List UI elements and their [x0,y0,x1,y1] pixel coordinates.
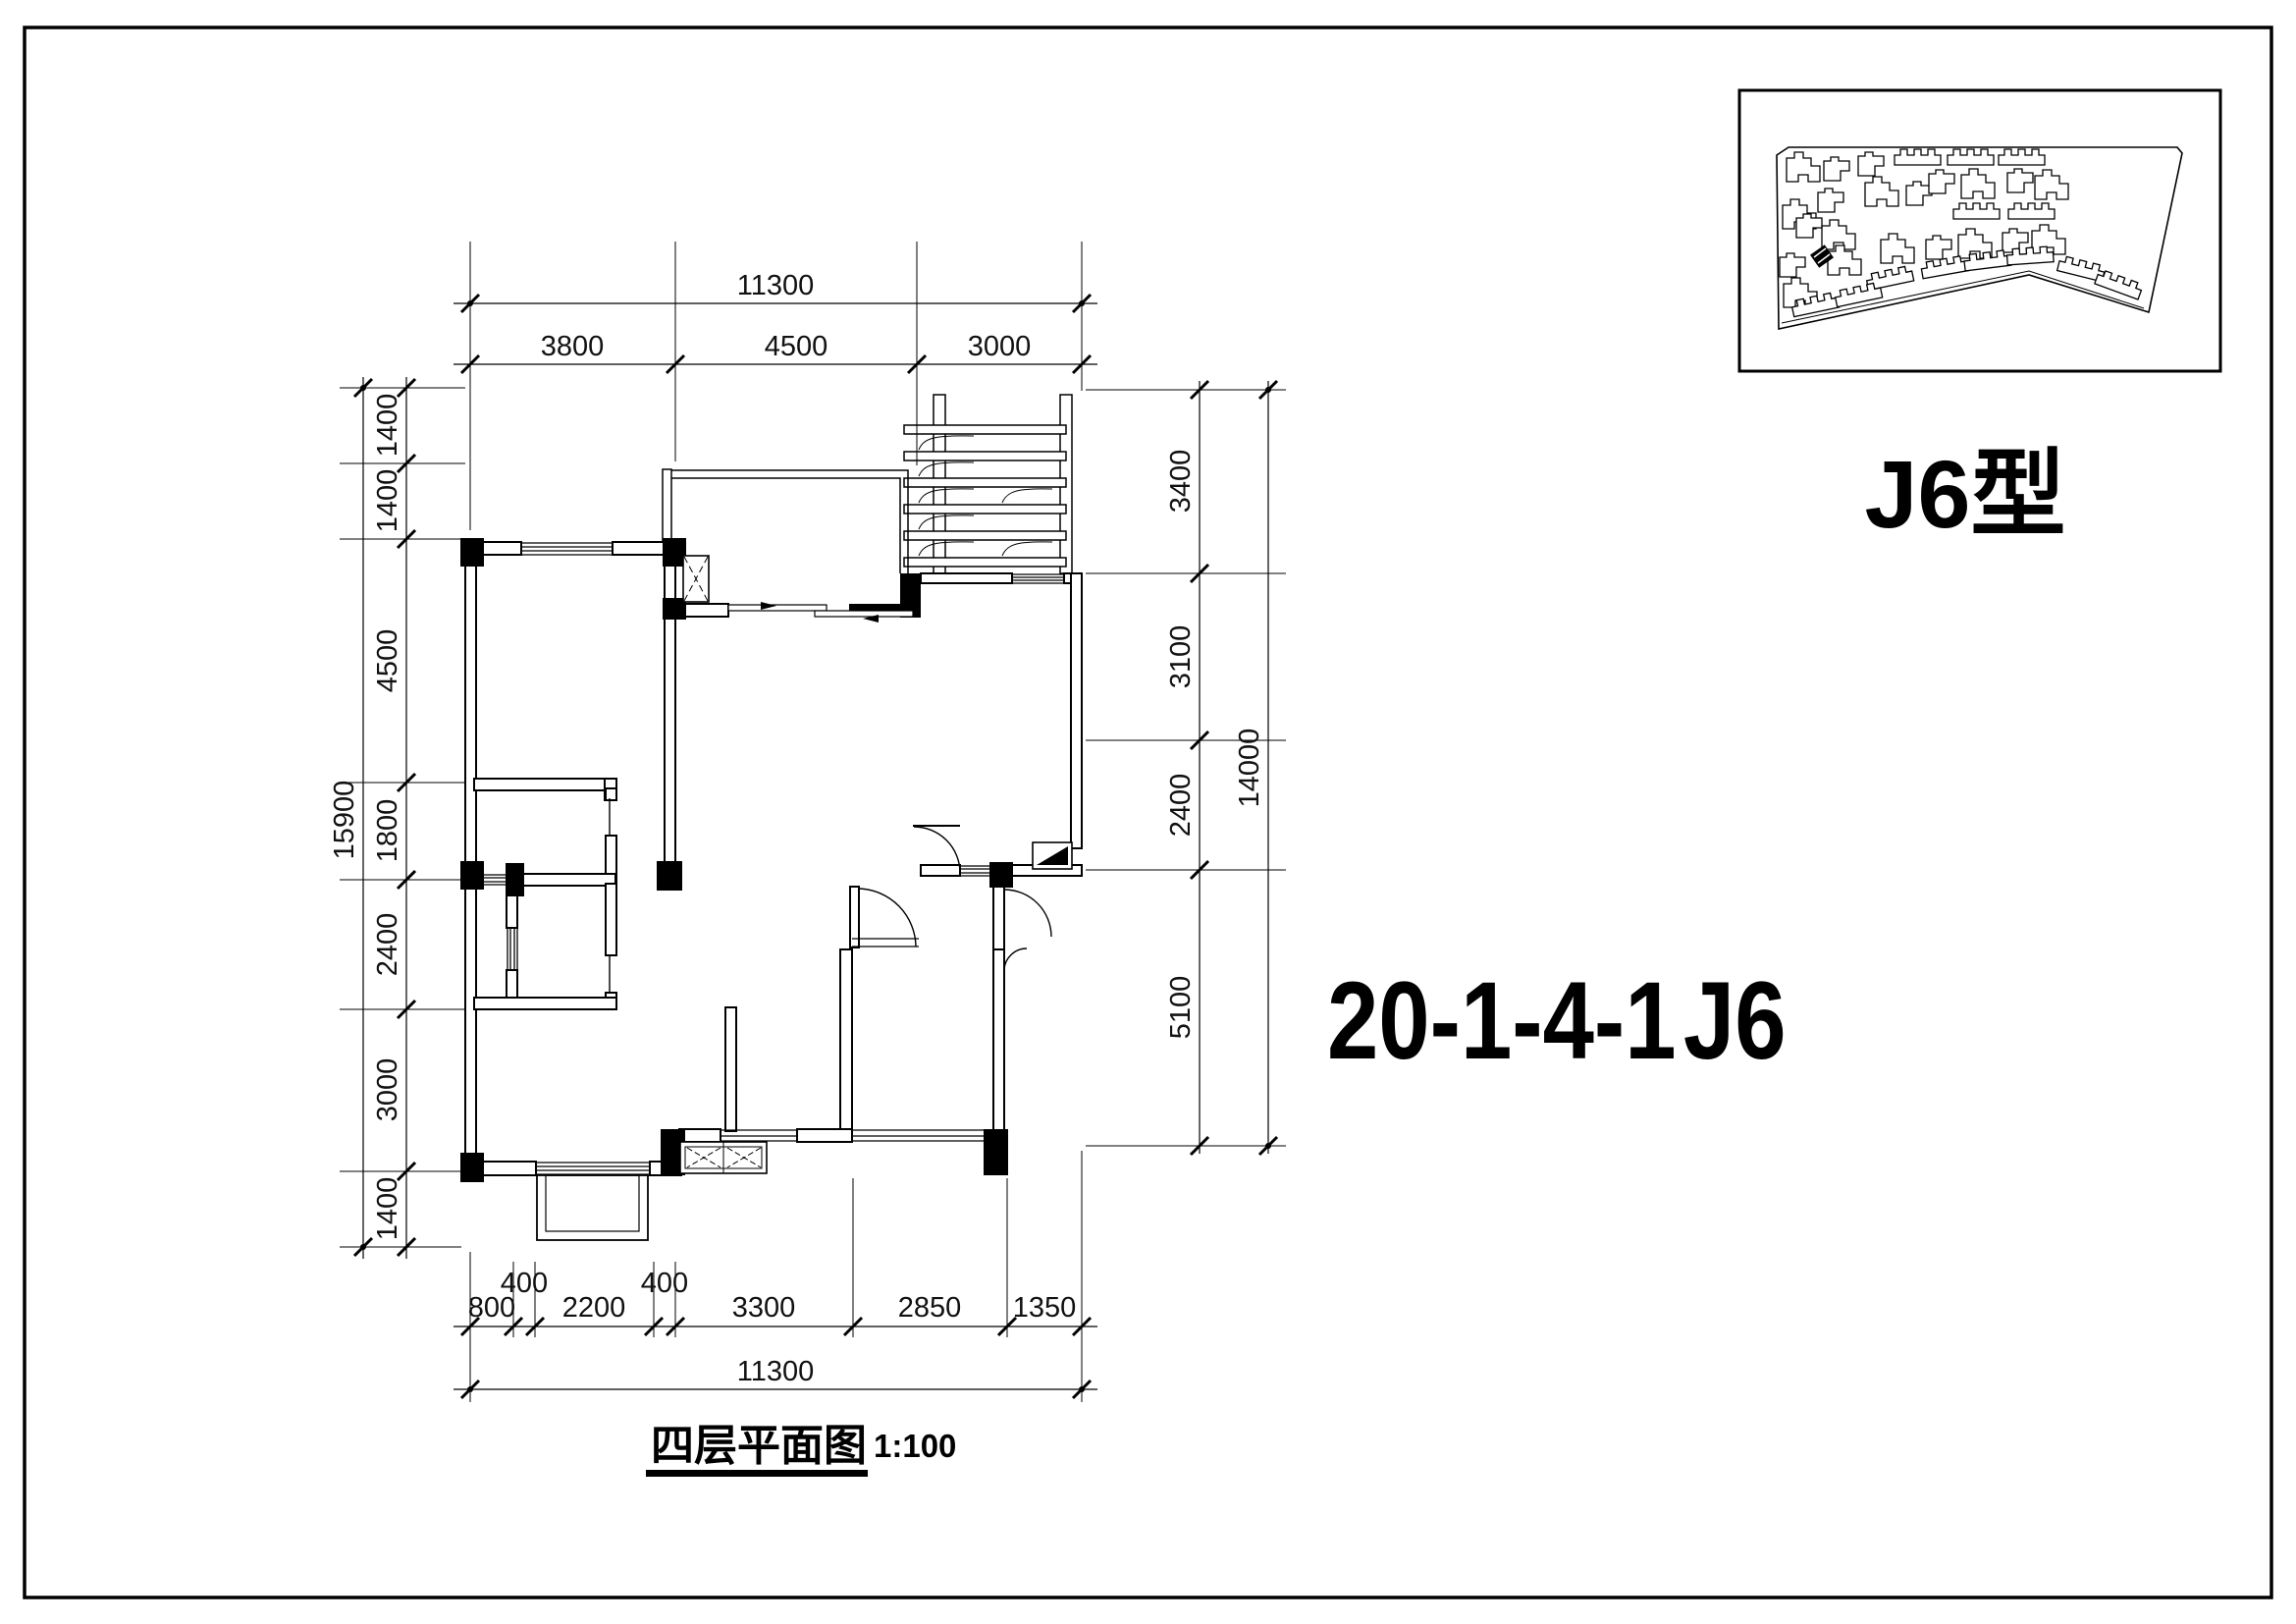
column [657,861,682,891]
dim-bottom-seg-1: 400 [501,1268,548,1299]
door-arc-kitchen [859,889,916,947]
dim-right-seg-0: 3400 [1165,450,1197,514]
dim-top-seg-2: 3000 [968,331,1032,362]
dim-top-total: 11300 [737,270,815,301]
wall-bed1-south [474,779,616,790]
window-living-north [1012,574,1064,583]
dim-left-seg-3: 1800 [372,799,403,863]
caption-text: 四层平面图 [651,1422,867,1470]
threshold [852,939,919,947]
dim-right-total: 14000 [1234,729,1265,808]
window-wc [507,928,517,970]
dim-left-total: 15900 [329,781,360,860]
window-bed1-north [521,543,613,555]
door-arc-hall [1004,890,1051,937]
column [460,1153,484,1182]
column [460,538,484,567]
unit-title: 20-1-4-1 J6 [1327,958,1787,1082]
dim-top-seg-0: 3800 [541,331,605,362]
windows [479,543,1064,1174]
dim-left-seg-0: 1400 [372,394,403,458]
wall-west-outer [465,539,476,1181]
door-arc-small [1004,948,1027,971]
dim-bottom-seg-3: 400 [641,1268,688,1299]
unit-code-text: 20-1-4-1 [1327,958,1677,1082]
wall-bed2-north [474,998,616,1009]
dim-bottom-seg-4: 3300 [732,1292,796,1324]
dim-bottom-seg-2: 2200 [562,1292,626,1324]
dim-bottom-seg-5: 2850 [898,1292,962,1324]
dim-right-seg-1: 3100 [1165,625,1197,689]
unit-type-text: J6 [1683,958,1787,1082]
dim-bottom-seg-6: 1350 [1013,1292,1077,1324]
balcony [537,1175,648,1240]
dim-left-seg-6: 1400 [372,1177,403,1241]
dim-left-seg-4: 2400 [372,913,403,977]
flue-shafts [683,556,1072,869]
type-title: J6型 [1865,441,2066,548]
dim-bottom-total: 11300 [737,1356,815,1387]
column [984,1129,1008,1175]
site-plan-inset [1739,90,2220,371]
window-bed2-south [536,1163,650,1174]
dimension-ticks [354,295,1277,1398]
dimension-dots [360,300,1271,1392]
dim-left-seg-5: 3000 [372,1058,403,1122]
terrace-west-edge [663,469,671,542]
caption-underline [646,1470,868,1477]
caption-block: 四层平面图 1:100 [646,1422,956,1477]
dim-right-seg-2: 2400 [1165,774,1197,838]
window-jog [960,866,993,876]
walls [462,539,1082,1181]
wall-bed2-east [725,1007,736,1131]
dim-left-seg-1: 1400 [372,469,403,533]
floor-plan [460,395,1082,1240]
dim-right-seg-3: 5100 [1165,976,1197,1040]
dim-top-seg-1: 4500 [765,331,828,362]
window-kitchen-south [852,1130,986,1141]
wall-east-outer [1071,573,1082,848]
pergola [904,395,1072,573]
drawing-sheet: J6型 20-1-4-1 J6 四层平面图 1:100 [0,0,2296,1624]
wall-kitchen-west [840,949,852,1131]
caption-scale: 1:100 [874,1428,956,1464]
extension-lines [340,242,1286,1402]
dim-left-seg-2: 4500 [372,629,403,693]
bay-strip [680,1142,767,1173]
floor-plan-canvas: J6型 20-1-4-1 J6 四层平面图 1:100 [0,0,2296,1624]
column [506,863,524,896]
